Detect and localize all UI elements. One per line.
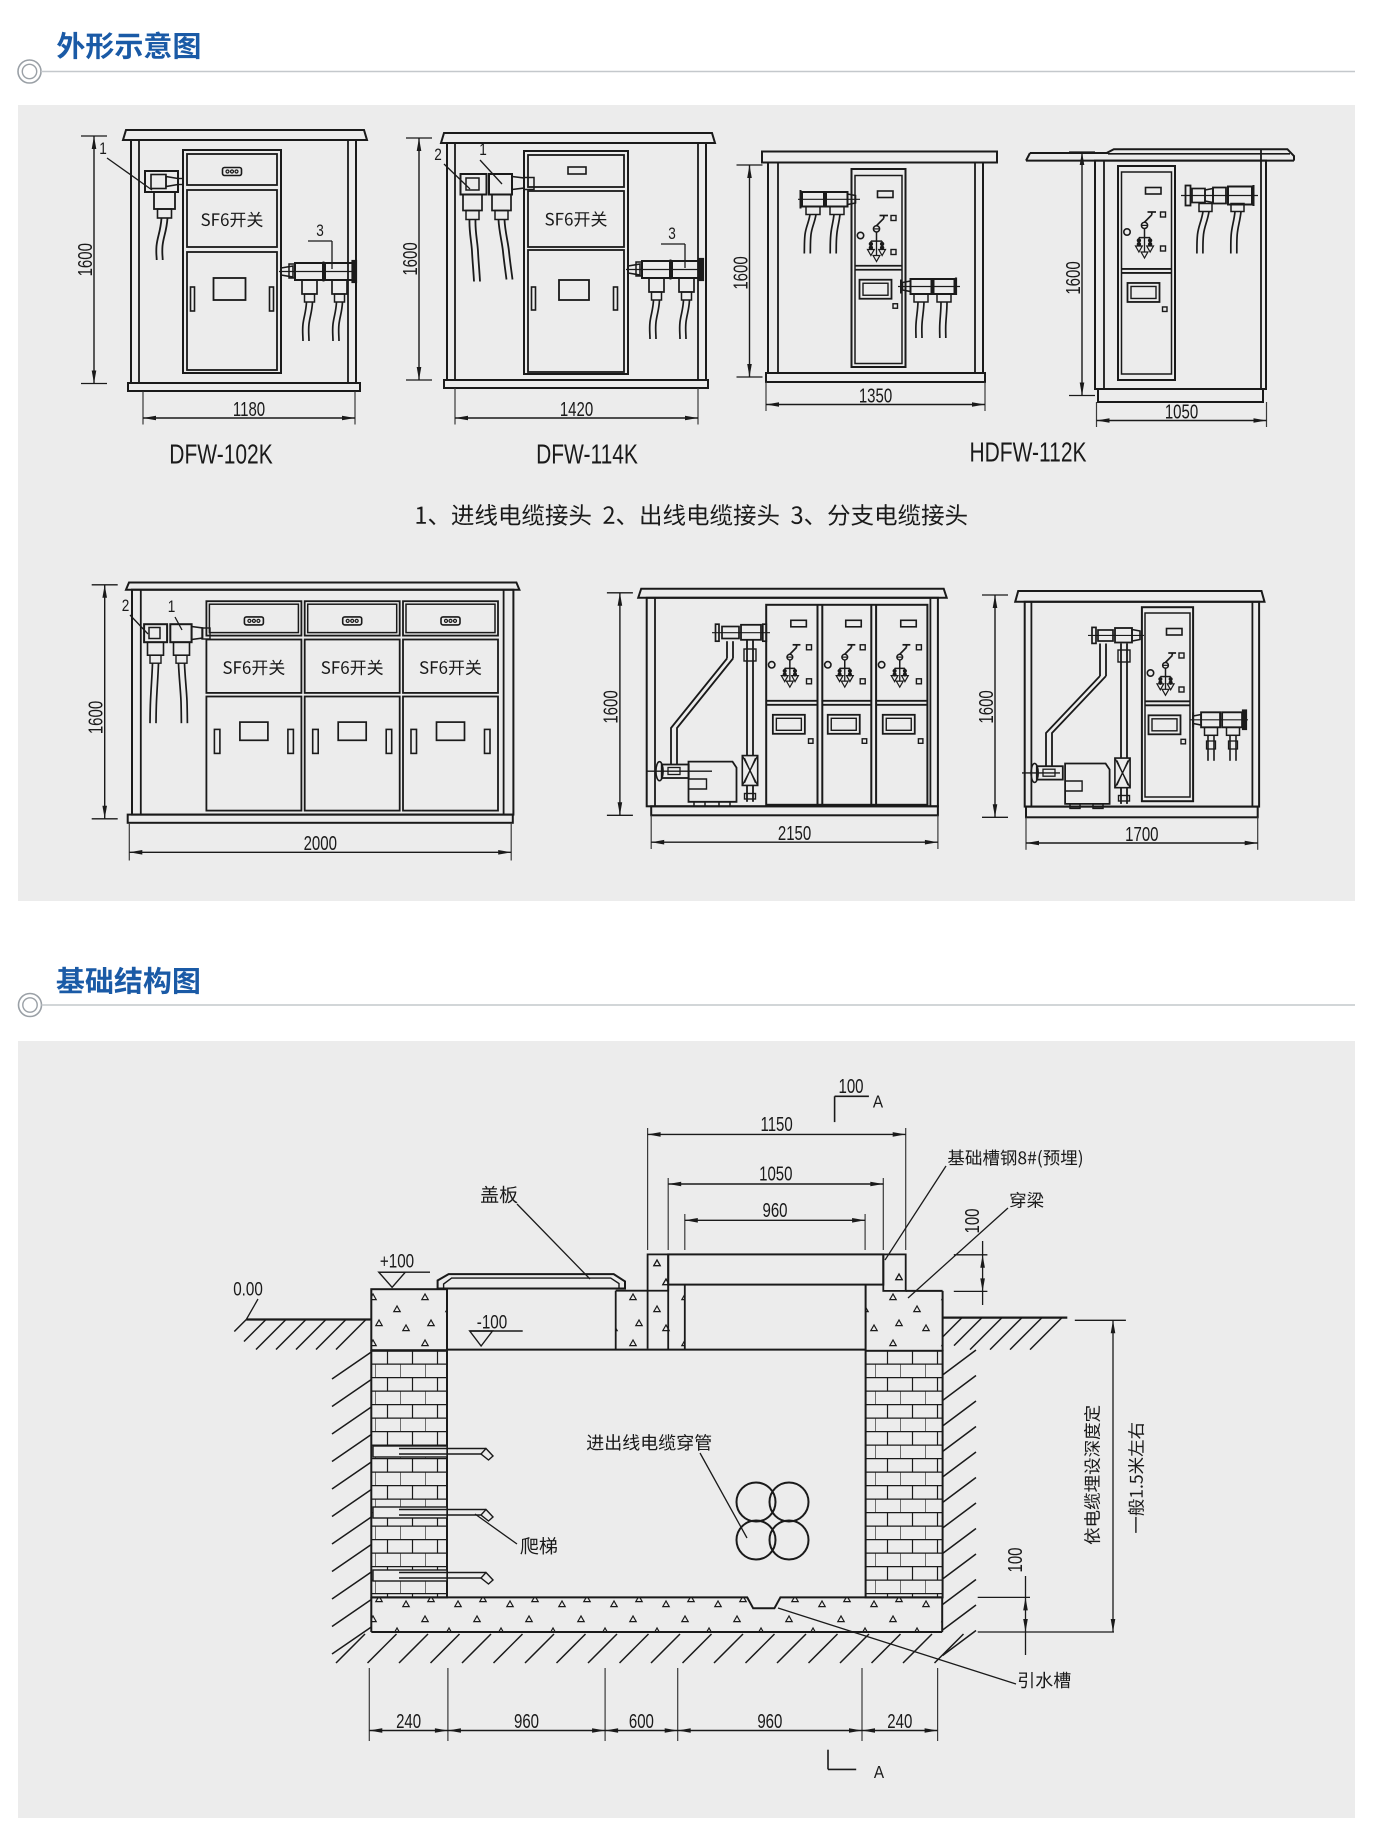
svg-text:1350: 1350 [859,384,892,407]
svg-text:100: 100 [838,1075,863,1098]
svg-text:0.00: 0.00 [233,1278,263,1300]
svg-text:1600: 1600 [1062,261,1085,294]
svg-text:1700: 1700 [1125,823,1158,846]
svg-text:1: 1 [99,140,107,159]
svg-text:1600: 1600 [84,701,107,734]
svg-text:A: A [874,1762,885,1782]
svg-text:960: 960 [762,1199,787,1222]
svg-text:+100: +100 [380,1250,414,1272]
svg-text:1: 1 [479,141,487,160]
svg-text:960: 960 [757,1710,782,1733]
svg-text:240: 240 [396,1710,421,1733]
svg-text:2: 2 [434,146,442,165]
svg-text:2: 2 [122,597,130,616]
svg-text:240: 240 [887,1710,912,1733]
svg-text:1600: 1600 [399,242,422,275]
svg-text:1050: 1050 [759,1162,792,1185]
svg-text:3: 3 [316,222,324,241]
svg-text:1600: 1600 [600,690,623,723]
svg-text:HDFW-112K: HDFW-112K [969,438,1086,469]
svg-text:1600: 1600 [74,243,97,276]
svg-text:DFW-102K: DFW-102K [169,440,273,471]
svg-text:1: 1 [168,598,176,617]
svg-text:1420: 1420 [560,398,593,421]
svg-text:3: 3 [668,225,676,244]
svg-text:600: 600 [629,1710,654,1733]
svg-text:DFW-114K: DFW-114K [536,440,638,471]
svg-text:1050: 1050 [1165,400,1198,423]
svg-text:100: 100 [961,1208,984,1233]
svg-text:100: 100 [1004,1547,1027,1572]
svg-text:1180: 1180 [233,398,265,421]
svg-text:2000: 2000 [304,832,337,855]
svg-text:1600: 1600 [975,690,998,723]
svg-text:960: 960 [514,1710,539,1733]
svg-text:-100: -100 [477,1311,507,1333]
svg-text:1600: 1600 [729,256,752,289]
svg-text:1150: 1150 [760,1113,792,1136]
svg-text:2150: 2150 [778,822,811,845]
svg-text:A: A [873,1091,884,1111]
